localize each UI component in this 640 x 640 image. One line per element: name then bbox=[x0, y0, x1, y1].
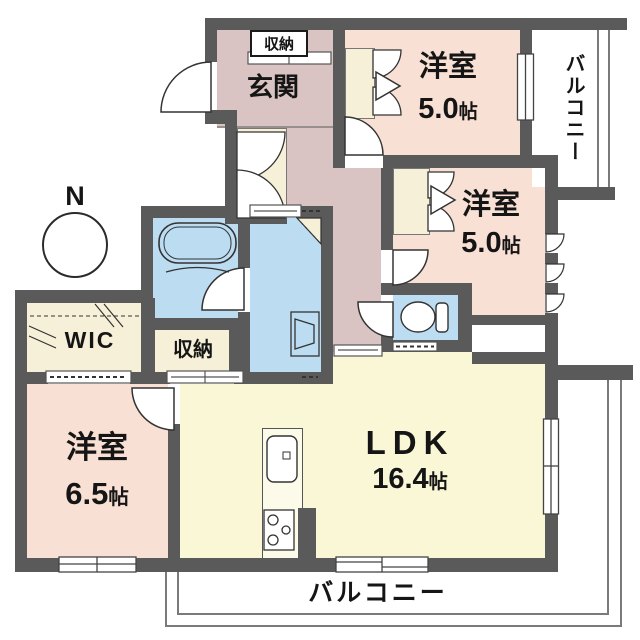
yoshitsu3-size: 6.5帖 bbox=[38, 478, 156, 511]
ldk-label: LDK bbox=[340, 426, 480, 461]
ldk-size: 16.4帖 bbox=[340, 464, 480, 494]
bathtub-icon bbox=[159, 223, 236, 272]
door-arc-yoshitsu-1 bbox=[345, 117, 383, 155]
balcony-bottom-label: バルコニー bbox=[278, 580, 478, 606]
genkan-label: 玄関 bbox=[225, 74, 321, 101]
stove-icon bbox=[264, 510, 294, 550]
toilet-icon bbox=[401, 302, 448, 332]
storage-label: 収納 bbox=[158, 340, 228, 361]
entrance-door-arc bbox=[161, 62, 211, 112]
washing-machine-icon bbox=[291, 312, 319, 356]
yoshitsu1-label: 洋室 bbox=[388, 52, 508, 82]
yoshitsu1-size: 5.0帖 bbox=[388, 94, 508, 124]
compass-icon bbox=[42, 212, 108, 278]
shoe-storage-label: 収納 bbox=[250, 30, 308, 57]
kitchen-sink-icon bbox=[267, 436, 297, 482]
balcony-right-label: バルコニー bbox=[553, 38, 583, 178]
yoshitsu3-label: 洋室 bbox=[38, 432, 156, 465]
yoshitsu2-label: 洋室 bbox=[430, 190, 552, 220]
door-arc-toilet bbox=[358, 302, 393, 337]
compass-north-label: N bbox=[58, 182, 92, 210]
washbasin-icon bbox=[297, 218, 321, 244]
door-arc-bathroom bbox=[202, 268, 250, 312]
floor-plan: N 収納 玄関 洋室 5.0帖 バルコニー 洋室 5.0帖 WIC 収納 洋室 … bbox=[0, 0, 640, 640]
wic-label: WIC bbox=[50, 328, 130, 352]
door-arc-yoshitsu-2 bbox=[393, 250, 428, 285]
yoshitsu2-size: 5.0帖 bbox=[430, 228, 552, 258]
door-arc-yoshitsu-3 bbox=[132, 388, 174, 430]
